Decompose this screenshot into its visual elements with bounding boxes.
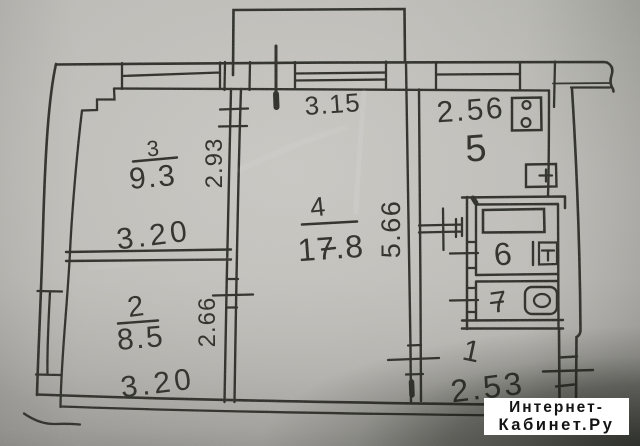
svg-text:8.5: 8.5 — [116, 320, 166, 357]
svg-text:5: 5 — [464, 127, 488, 170]
svg-text:2: 2 — [125, 290, 145, 324]
svg-text:6: 6 — [492, 235, 513, 273]
svg-text:2.66: 2.66 — [194, 297, 221, 348]
svg-text:5.66: 5.66 — [376, 200, 406, 259]
svg-text:4: 4 — [309, 191, 327, 222]
svg-text:3.15: 3.15 — [304, 87, 363, 121]
svg-text:9.3: 9.3 — [128, 159, 178, 196]
svg-text:3: 3 — [146, 136, 160, 162]
svg-text:2.56: 2.56 — [436, 92, 507, 130]
svg-text:2.93: 2.93 — [201, 138, 228, 189]
